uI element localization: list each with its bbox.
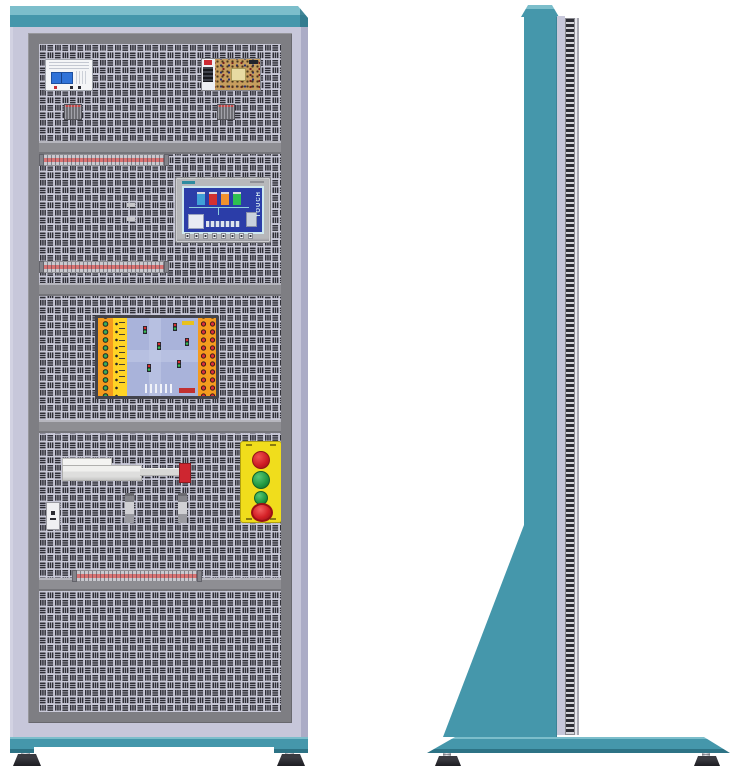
- hmi-key: [230, 233, 235, 239]
- panel-divider-2: [39, 283, 281, 296]
- red-button: [252, 451, 270, 469]
- leveling-foot: [277, 754, 305, 766]
- front-panel-area: TOUCH: [39, 44, 281, 712]
- traffic-light-icon: [157, 342, 161, 350]
- traffic-light-icon: [147, 364, 151, 372]
- leveling-foot: [694, 756, 720, 766]
- psu-front-strip: [202, 59, 215, 90]
- front-base-corner: [10, 737, 34, 753]
- green-button: [252, 471, 270, 489]
- hmi-screen: TOUCH: [182, 186, 264, 234]
- hmi-screen-text: TOUCH: [256, 191, 262, 217]
- board-jack-column-green: [98, 318, 113, 396]
- emergency-stop-button: [251, 503, 273, 522]
- panel-edge-highlight: [575, 18, 579, 735]
- strip-end-cap: [164, 154, 169, 166]
- hmi-function-keys: [185, 233, 261, 240]
- hmi-key: [185, 233, 190, 239]
- relay-tab: [127, 203, 135, 207]
- cabinet-column: [524, 16, 557, 737]
- base-gusset: [443, 525, 524, 737]
- equipment-elevation-drawing: TOUCH: [0, 0, 730, 766]
- traffic-light-icon: [173, 323, 177, 331]
- board-jack-column-red: [198, 318, 216, 396]
- front-top-cap: [10, 6, 308, 27]
- front-base-corner: [274, 737, 308, 753]
- hmi-key: [221, 233, 226, 239]
- simulation-board: [95, 315, 219, 399]
- yellow-marker: [182, 321, 194, 325]
- cap-side-edge: [300, 6, 308, 27]
- hmi-touch-panel: TOUCH: [175, 177, 271, 243]
- sensor-module: [46, 502, 60, 530]
- relay-tab: [127, 217, 135, 221]
- relay-group: [65, 191, 145, 229]
- proximity-sensor: [125, 493, 134, 523]
- trend-chart-icon: [188, 214, 204, 229]
- hmi-model-mark: [250, 181, 264, 183]
- psu-pcb: [215, 59, 260, 90]
- hmi-key: [194, 233, 199, 239]
- traffic-light-icon: [143, 326, 147, 334]
- relay-block: [85, 191, 104, 210]
- terminal-connector: [64, 104, 82, 120]
- board-intersection-graphic: [127, 318, 198, 396]
- column-rear-strip: [557, 16, 565, 735]
- strip-end-cap: [197, 570, 202, 582]
- breaker-vent-lines: [76, 71, 88, 84]
- relay-block: [106, 191, 125, 210]
- relay-block: [65, 191, 84, 210]
- psu-capacitor: [249, 60, 258, 64]
- hmi-key: [248, 233, 253, 239]
- pipe-line: [218, 207, 219, 215]
- board-red-label: [179, 388, 195, 393]
- terminal-strip-mid: [39, 261, 169, 273]
- relay-block: [85, 211, 104, 230]
- strip-end-cap: [39, 261, 44, 273]
- terminal-strip-top: [39, 154, 169, 166]
- breaker-toggle: [51, 72, 73, 84]
- crosswalk-stripes: [145, 384, 175, 393]
- tank-icon: [209, 192, 217, 205]
- strip-end-cap: [39, 154, 44, 166]
- circuit-breaker: [45, 59, 93, 91]
- hmi-brand-mark: [182, 181, 195, 184]
- terminal-strip-bottom: [72, 570, 202, 582]
- floor-base-plate: [427, 737, 730, 753]
- panel-divider-1: [39, 141, 281, 154]
- tank-icon: [233, 192, 241, 205]
- cylinder-red-end-cap: [179, 463, 191, 483]
- pneumatic-cylinder-body: [62, 465, 142, 481]
- panel-divider-3: [39, 420, 281, 433]
- relay-block: [65, 211, 84, 230]
- traffic-light-icon: [185, 338, 189, 346]
- hmi-key: [212, 233, 217, 239]
- board-label-text-lines: [119, 322, 125, 384]
- column-top-cap: [521, 5, 559, 17]
- tank-icon: [197, 192, 205, 205]
- board-label-strip: [113, 318, 127, 396]
- strip-end-cap: [164, 261, 169, 273]
- relay-block: [106, 211, 125, 230]
- conveyor-icon: [206, 221, 240, 227]
- psu-logo-mark: [204, 60, 212, 65]
- cylinder-rod: [140, 468, 180, 476]
- traffic-light-icon: [177, 360, 181, 368]
- pipe-line: [189, 207, 249, 208]
- push-button-station: [240, 441, 281, 523]
- proximity-sensor: [178, 493, 187, 523]
- terminal-connector: [217, 104, 235, 120]
- leveling-foot: [435, 756, 461, 766]
- road-horizontal: [127, 350, 198, 362]
- hmi-key: [203, 233, 208, 239]
- leveling-foot: [13, 754, 41, 766]
- front-base-strip: [10, 737, 308, 747]
- tank-icon: [221, 192, 229, 205]
- psu-transformer: [231, 68, 246, 81]
- psu-terminal-block: [203, 67, 213, 82]
- power-supply: [201, 58, 261, 91]
- strip-end-cap: [72, 570, 77, 582]
- perforated-panel-edge: [565, 18, 575, 735]
- hmi-key: [239, 233, 244, 239]
- breaker-indicator-marks: [52, 86, 86, 89]
- breaker-label-lines: [49, 62, 89, 69]
